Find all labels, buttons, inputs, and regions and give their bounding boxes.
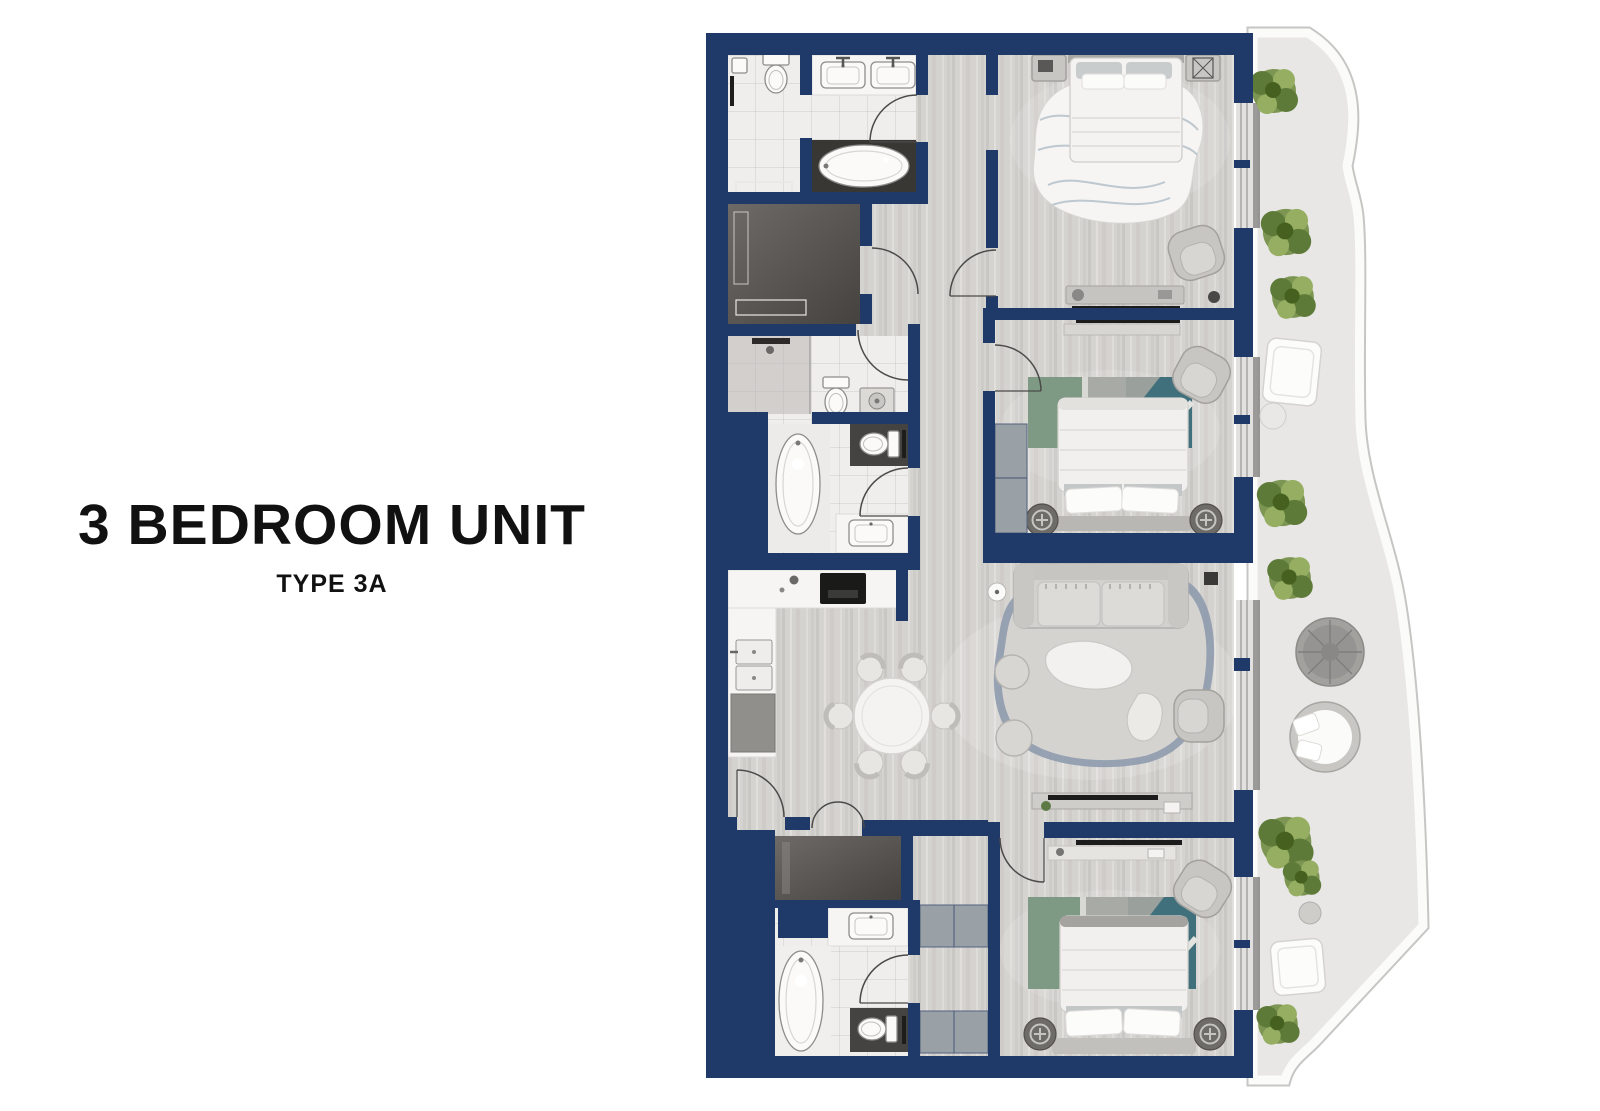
- door-track: [1253, 103, 1260, 228]
- round-side-table: [1024, 1018, 1056, 1050]
- pillow: [1123, 1009, 1180, 1037]
- door-track: [1253, 600, 1260, 790]
- sliding-door: [1234, 600, 1253, 790]
- wall-bottom: [706, 1056, 1253, 1078]
- balcony-floor: [1253, 33, 1423, 1080]
- wall: [908, 900, 920, 955]
- floor-lamp-icon: [988, 583, 1006, 601]
- wall: [983, 308, 1253, 320]
- wall: [986, 296, 998, 308]
- wall: [908, 324, 920, 336]
- pillow: [1065, 487, 1122, 514]
- wall: [983, 533, 1253, 563]
- wall-right: [1234, 228, 1253, 357]
- kitchen-counter: [728, 570, 900, 608]
- pouf: [995, 655, 1029, 689]
- tv-icon: [1048, 795, 1158, 800]
- wall-column: [728, 830, 775, 1056]
- wall: [908, 1003, 920, 1056]
- wall: [862, 820, 988, 836]
- balcony-cushion-chair: [1262, 337, 1322, 406]
- pillow: [1124, 74, 1166, 89]
- decor-sphere: [1056, 848, 1064, 856]
- wall: [728, 553, 920, 570]
- wall-right: [1234, 33, 1253, 103]
- rattan-table: [1296, 618, 1364, 686]
- bathtub: [819, 145, 909, 187]
- bathtub: [779, 951, 823, 1051]
- wall: [988, 822, 1000, 1056]
- round-side-table: [1194, 1018, 1226, 1050]
- kitchen-cabinet: [731, 694, 775, 752]
- decor-pot: [1208, 291, 1220, 303]
- wall: [728, 324, 856, 336]
- decor-sphere: [1260, 403, 1286, 429]
- wall: [986, 150, 998, 204]
- round-lounge-chair: [1290, 702, 1360, 772]
- wall: [908, 516, 920, 557]
- dining-chair: [931, 703, 958, 729]
- toilet-icon: [858, 1016, 897, 1042]
- pouf: [996, 720, 1032, 756]
- wall: [983, 310, 995, 343]
- faucet-icon: [790, 576, 799, 585]
- nightstand: [1186, 55, 1220, 81]
- wall: [901, 836, 913, 900]
- towel-bar: [902, 430, 906, 458]
- cooktop-icon: [828, 590, 858, 598]
- wall: [916, 55, 928, 95]
- shower-head-icon: [752, 338, 790, 344]
- sliding-door: [1234, 103, 1253, 228]
- bathroom-bin: [732, 58, 747, 73]
- speaker-icon: [1204, 572, 1218, 585]
- wall: [785, 817, 810, 830]
- toilet-icon: [823, 377, 849, 416]
- sliding-door: [1234, 877, 1253, 1010]
- plant-icon: [1041, 801, 1051, 811]
- round-side-table: [1190, 504, 1222, 536]
- wall: [860, 294, 872, 324]
- shower-drain: [766, 346, 774, 354]
- balcony: [1250, 33, 1423, 1080]
- decor-box: [1164, 802, 1180, 813]
- decor-box: [1158, 290, 1172, 299]
- sliding-door: [1234, 357, 1253, 477]
- towel-bar: [730, 76, 734, 106]
- armchair: [1174, 690, 1224, 742]
- floor-plan: [0, 0, 1600, 1111]
- master-bed: [1068, 55, 1184, 162]
- headboard-bench: [1052, 1038, 1196, 1054]
- wall: [860, 204, 872, 246]
- toilet-icon: [860, 431, 899, 457]
- decor-sphere: [1299, 902, 1321, 924]
- nightstand: [1032, 55, 1066, 81]
- headboard: [1054, 516, 1192, 531]
- wall: [775, 900, 908, 908]
- bathroom-3: [775, 906, 908, 1056]
- foyer-reflection: [782, 842, 790, 894]
- door-track: [1253, 357, 1260, 477]
- wall-top: [706, 33, 1253, 55]
- wall: [1044, 822, 1253, 838]
- wall-right: [1234, 1010, 1253, 1078]
- wall: [728, 412, 768, 557]
- tv-icon: [1076, 840, 1182, 845]
- wall-left: [706, 33, 728, 1078]
- washer-icon: [860, 388, 894, 414]
- sink-icon: [849, 520, 893, 546]
- wall: [728, 192, 928, 204]
- wall: [986, 55, 998, 95]
- door-track: [1253, 877, 1260, 1010]
- walk-in-closet: [728, 204, 860, 324]
- cooktop-icon: [820, 573, 866, 604]
- dining-chair: [826, 703, 853, 729]
- tv-console: [1064, 324, 1180, 335]
- balcony-armchair: [1270, 938, 1327, 996]
- page: 3 BEDROOM UNIT TYPE 3A: [0, 0, 1600, 1111]
- pillow: [1121, 487, 1178, 514]
- decor-sphere: [1072, 289, 1084, 301]
- faucet-icon: [824, 164, 829, 169]
- sofa: [1014, 564, 1188, 628]
- wall: [800, 55, 812, 95]
- wall: [986, 204, 998, 248]
- wall: [706, 817, 737, 830]
- toilet-icon: [763, 54, 789, 93]
- pillow: [1065, 1009, 1122, 1037]
- decor-box: [1148, 849, 1164, 858]
- wall: [800, 138, 812, 194]
- bathtub: [776, 434, 820, 534]
- round-side-table: [1026, 504, 1058, 536]
- wall: [896, 557, 908, 621]
- wall: [983, 391, 995, 533]
- dining-table: [854, 678, 930, 754]
- wall: [908, 336, 920, 468]
- towel-bar: [902, 1016, 906, 1044]
- sink-icon: [849, 913, 893, 939]
- foyer: [775, 836, 901, 900]
- vanity-block: [778, 906, 828, 938]
- pillow: [1082, 74, 1124, 89]
- master-bathroom: [728, 54, 916, 204]
- wall: [812, 412, 920, 424]
